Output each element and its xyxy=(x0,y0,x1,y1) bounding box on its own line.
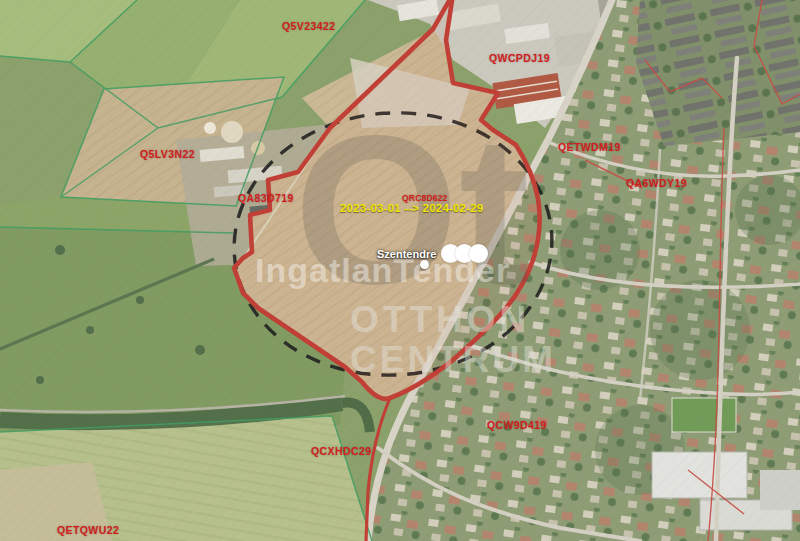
map-viewport[interactable]: Ot IngatlanTender OTTHON CENTRUM Q5V2342… xyxy=(0,0,800,541)
map-canvas[interactable] xyxy=(0,0,800,541)
cluster-markers[interactable] xyxy=(441,244,488,263)
place-label: Szentendre xyxy=(377,248,436,260)
date-range-label: 2023-03-01 --> 2024-02-29 xyxy=(340,202,483,214)
property-dot-marker[interactable] xyxy=(420,260,429,269)
satellite-grain xyxy=(0,0,800,541)
place-marker-group: Szentendre xyxy=(377,244,488,263)
cluster-dot-3 xyxy=(469,244,488,263)
